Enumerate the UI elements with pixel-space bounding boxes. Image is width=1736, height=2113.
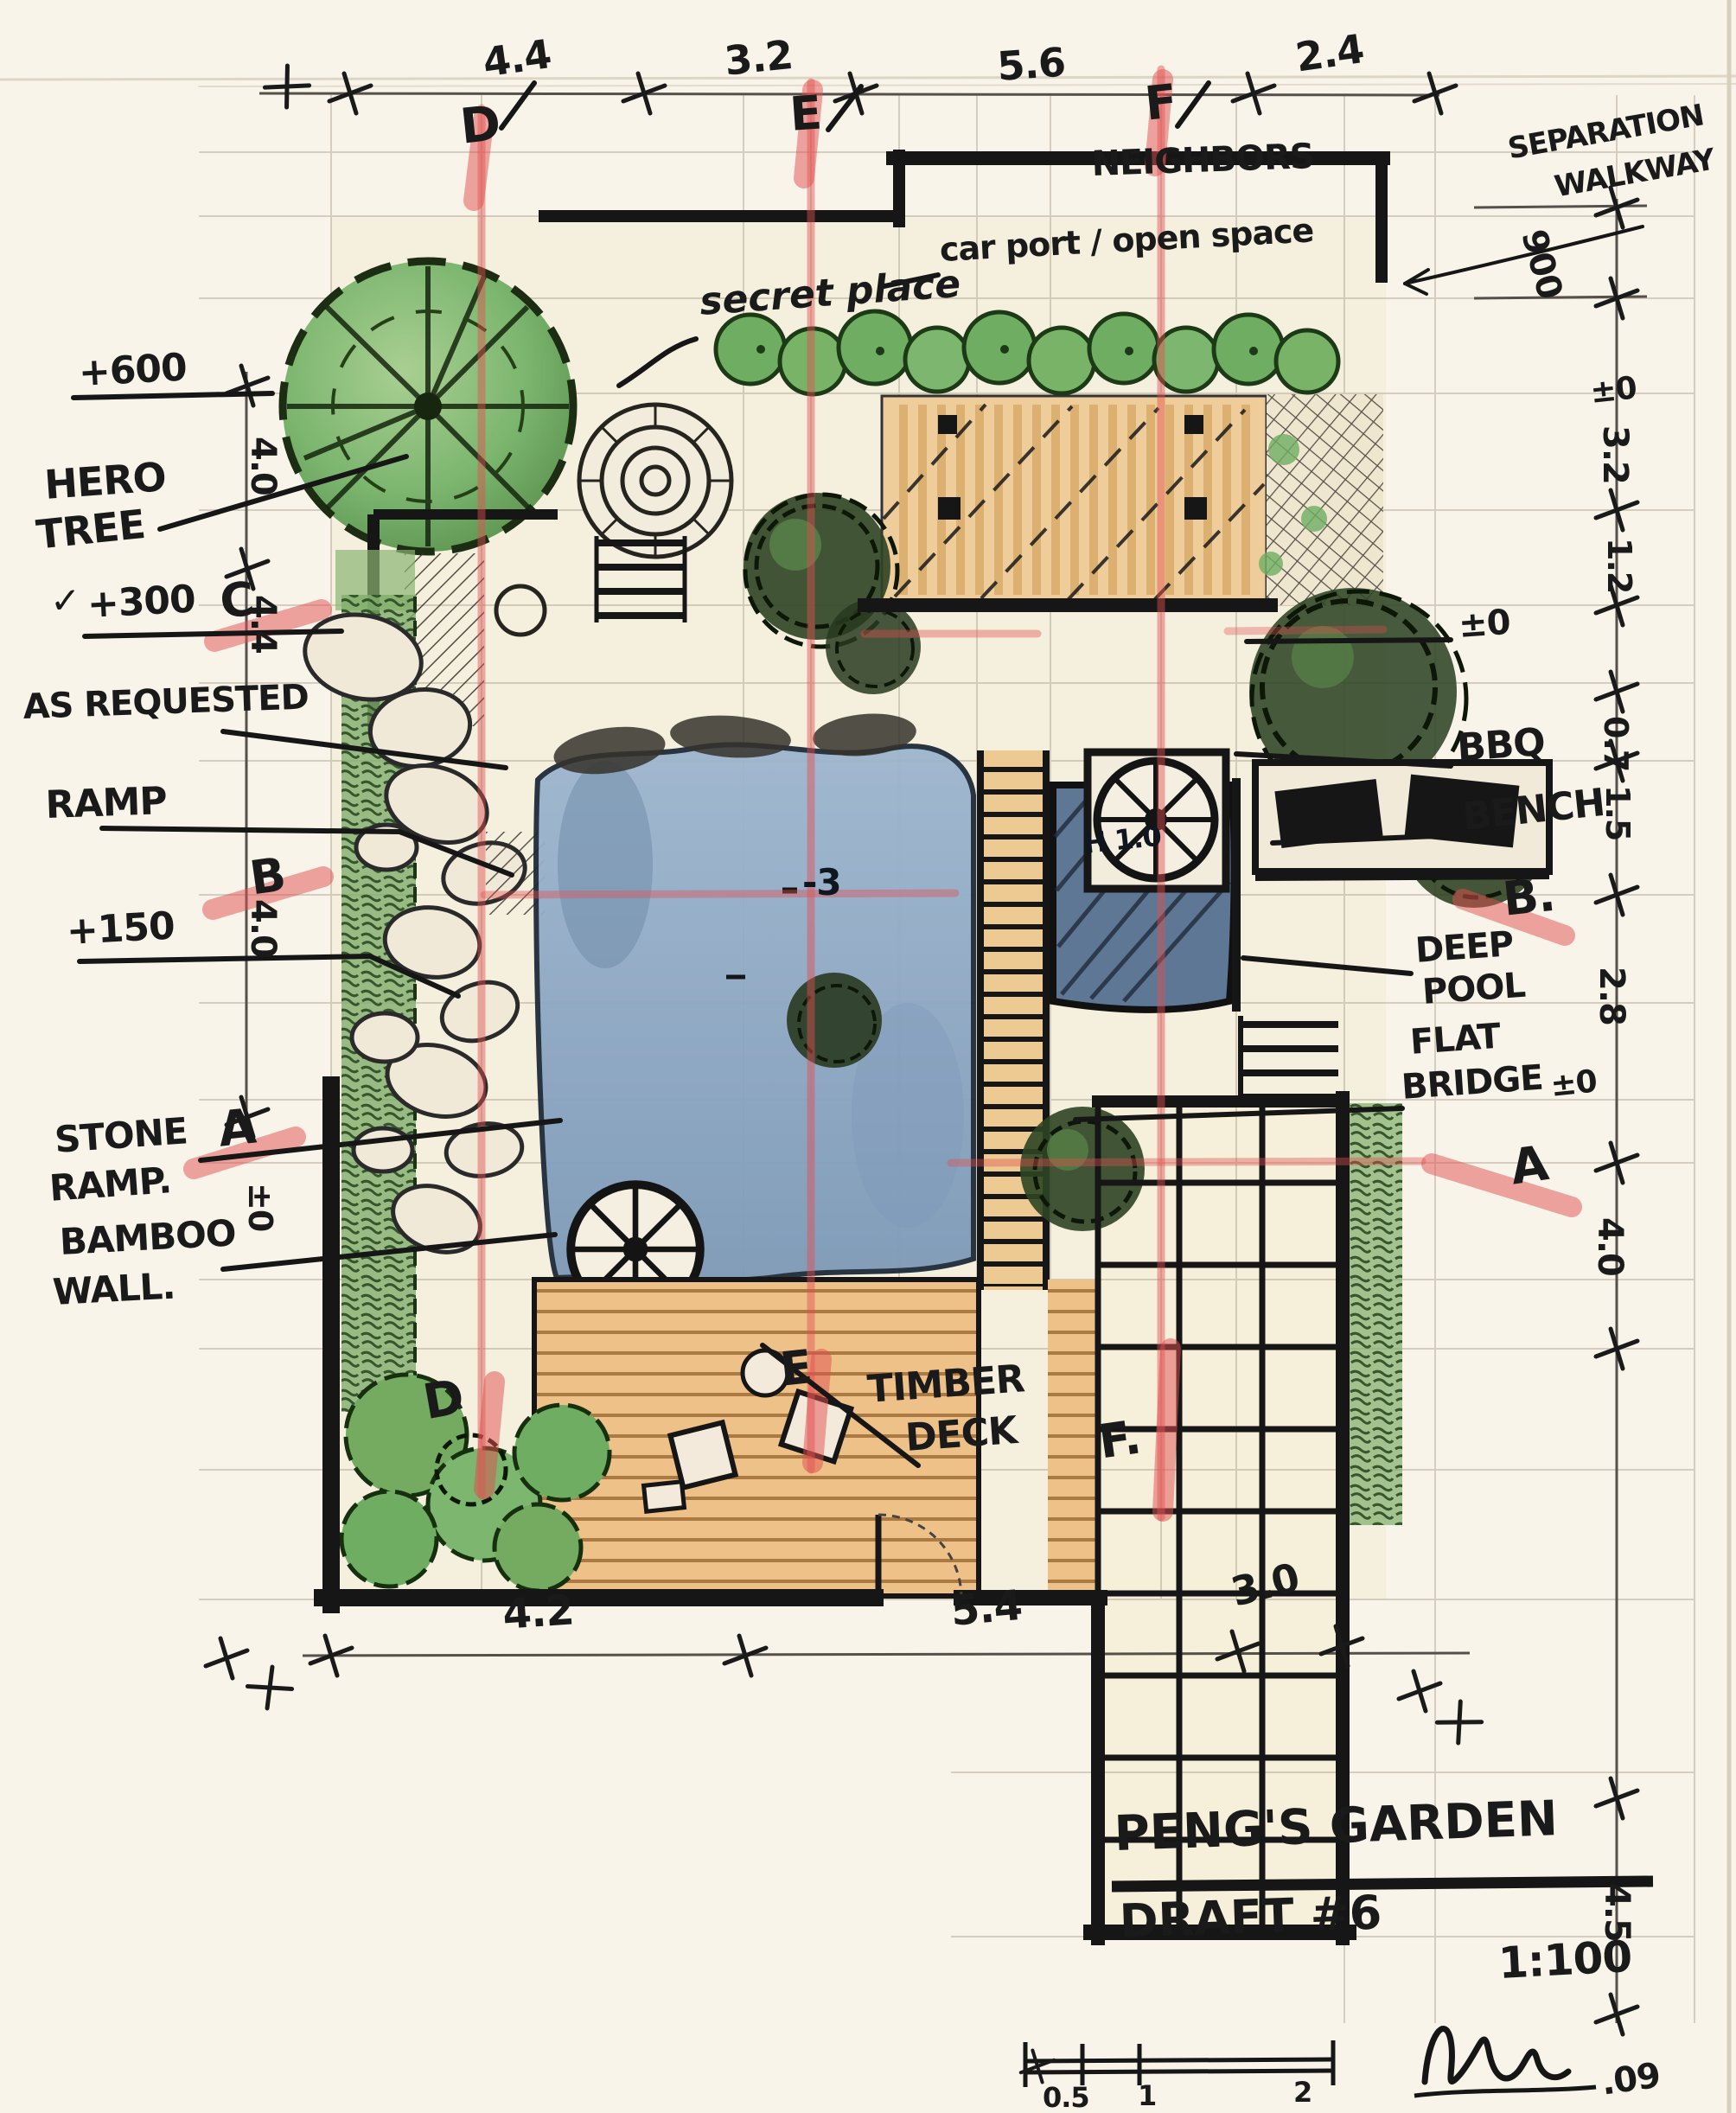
dim-top-3: 5.6 [996, 44, 1066, 86]
pool-depth-label: -3 [802, 866, 841, 900]
level-300-label: +300 [86, 582, 196, 622]
as-requested-label: AS REQUESTED [22, 681, 309, 723]
flat-bridge-label-1: FLAT [1409, 1021, 1501, 1059]
bamboo-wall-label-1: BAMBOO [59, 1216, 236, 1259]
date-note: .09 [1599, 2060, 1662, 2100]
scale-bar-label-2: 1 [1138, 2084, 1156, 2109]
section-marker-e-top: E [788, 91, 822, 136]
dim-right-5: 2.8 [1595, 967, 1627, 1025]
hero-tree-label-1: HERO [43, 458, 167, 503]
carport-area [882, 394, 1383, 605]
dim-bottom-1: 4.2 [501, 1591, 575, 1634]
datum-topright-label: ±0 [1589, 373, 1637, 406]
level-600-label: +600 [78, 350, 188, 391]
dim-top-2: 3.2 [723, 36, 794, 80]
timber-deck-label-2: DECK [904, 1414, 1018, 1456]
stone-ramp-label-2: RAMP. [48, 1164, 172, 1205]
dim-right-1: 3.2 [1599, 425, 1631, 484]
section-marker-f-top: F [1143, 80, 1178, 125]
hero-tree-label-2: TREE [35, 506, 146, 553]
dim-top-4: 2.4 [1293, 30, 1366, 76]
datum-bridge-label: ±0 [1549, 1067, 1598, 1100]
dim-bottom-2: 5.4 [949, 1586, 1024, 1631]
section-marker-f-bottom: F. [1096, 1415, 1143, 1464]
section-marker-a-right: A [1508, 1141, 1550, 1191]
garden-plan-sheet: 4.4 3.2 5.6 2.4 4.2 5.4 3.0 4.0 4.4 4.0 … [0, 0, 1736, 2113]
water-mark-label: H 1.0 [1082, 824, 1162, 858]
deep-pool-label-2: POOL [1421, 970, 1526, 1009]
dim-right-6: 4.0 [1593, 1217, 1625, 1276]
level-300-check: ✓ [50, 584, 80, 618]
level-150-label: +150 [66, 909, 176, 949]
section-marker-b-right: B. [1501, 873, 1557, 922]
section-marker-d-bottom: D [420, 1375, 467, 1426]
bbq-label: BBQ [1456, 725, 1546, 766]
section-marker-d-top: D [458, 101, 502, 150]
datum-left-label: ±0 [245, 1183, 275, 1231]
dim-right-4: 1.5 [1602, 785, 1632, 840]
dim-right-3: 0.7 [1600, 716, 1631, 771]
section-marker-c-left: C [218, 578, 256, 623]
dim-left-3: 4.0 [246, 899, 278, 958]
stone-ramp-label-1: STONE [54, 1114, 188, 1157]
dim-left-1: 4.0 [246, 437, 278, 495]
dim-right-2: 1.2 [1604, 538, 1634, 593]
scale-label: 1:100 [1497, 1937, 1632, 1983]
flat-bridge-label-2: BRIDGE [1401, 1063, 1544, 1104]
secret-place-circle [579, 405, 731, 557]
section-marker-a-left: A [216, 1105, 257, 1153]
neighbors-label: NEIGHBORS [1091, 141, 1314, 181]
datum-right-label: ±0 [1458, 607, 1511, 642]
scale-bar-label-1: 0.5 [1043, 2085, 1089, 2110]
timber-deck-label-1: TIMBER [866, 1362, 1025, 1408]
ramp-label: RAMP [45, 784, 167, 823]
bamboo-wall-label-2: WALL. [52, 1270, 176, 1310]
deep-pool-label-1: DEEP [1414, 929, 1514, 967]
hero-tree [283, 261, 573, 552]
scale-bar-label-3: 2 [1293, 2080, 1312, 2105]
section-marker-b-left: B [247, 852, 288, 900]
section-marker-e-bottom: E [778, 1345, 814, 1391]
project-title: PENG'S GARDEN [1114, 1797, 1559, 1856]
draft-label: DRAFT #6 [1119, 1891, 1382, 1943]
dim-top-1: 4.4 [481, 35, 553, 81]
signature [1425, 2029, 1568, 2082]
